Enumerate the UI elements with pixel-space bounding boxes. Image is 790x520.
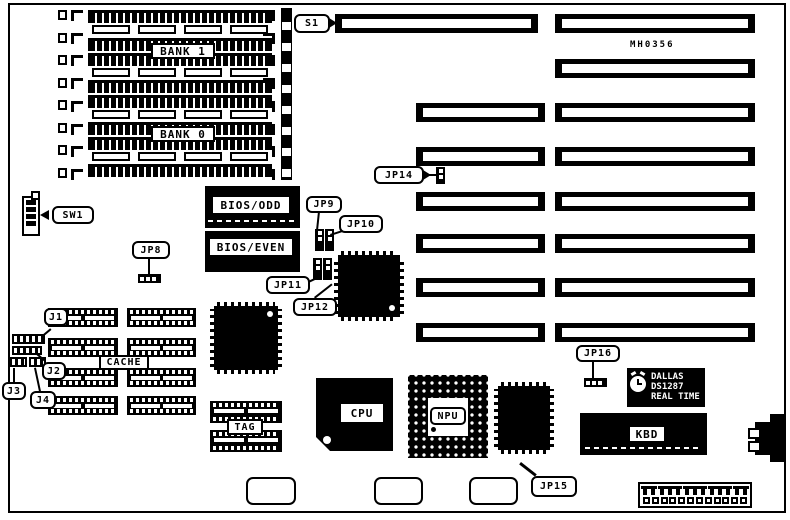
- expansion-slot: [555, 103, 755, 122]
- simm-socket: [184, 68, 222, 77]
- power-pin: [651, 488, 655, 495]
- pin: [439, 169, 443, 173]
- bios-even-label: BIOS/EVEN: [209, 238, 293, 256]
- power-socket: [722, 497, 729, 504]
- simm-socket: [184, 25, 222, 34]
- simm-latch-icon: [71, 78, 83, 89]
- teeth: [130, 340, 193, 344]
- din-pin: [748, 428, 761, 439]
- simm-module: [88, 10, 272, 23]
- window: [85, 346, 114, 350]
- pins: [217, 370, 275, 374]
- power-socket: [705, 497, 712, 504]
- power-pin: [701, 488, 705, 495]
- switch-segment: [26, 221, 36, 226]
- pin: [592, 381, 596, 385]
- power-pin: [676, 488, 680, 495]
- power-pin: [668, 488, 672, 495]
- npu-pin1-dot: [431, 427, 436, 432]
- cache-socket: [127, 368, 196, 387]
- jp8-callout: JP8: [132, 241, 170, 259]
- rtc-model: DS1287: [651, 382, 700, 392]
- rtc-brand: DALLAS: [651, 372, 700, 382]
- pins: [400, 258, 404, 314]
- pins: [501, 382, 547, 386]
- kbd-label: KBD: [629, 426, 665, 442]
- npu-label: NPU: [430, 407, 466, 425]
- teeth: [213, 403, 279, 407]
- switch-segment: [26, 214, 36, 219]
- simm-latch-icon: [71, 101, 83, 112]
- s1-callout: S1: [294, 14, 330, 33]
- din-pin: [748, 441, 761, 452]
- pin: [328, 237, 332, 241]
- rtc-tagline: REAL TIME: [651, 392, 700, 402]
- bank1-label: BANK 1: [151, 43, 215, 59]
- power-socket: [731, 497, 738, 504]
- power-socket: [669, 497, 676, 504]
- window: [131, 376, 160, 380]
- window: [163, 316, 192, 320]
- jp15-callout: JP15: [531, 476, 577, 497]
- power-pin: [660, 488, 664, 495]
- switch-segment: [26, 200, 36, 205]
- expansion-slot: [416, 103, 545, 122]
- jp8-jumper: [138, 274, 161, 283]
- simm-socket: [230, 68, 268, 77]
- pins: [217, 302, 275, 306]
- edge-square: [58, 145, 67, 155]
- rtc-chip: DALLAS DS1287 REAL TIME: [627, 368, 705, 407]
- expansion-slot: [555, 323, 755, 342]
- window: [163, 376, 192, 380]
- power-connector: [638, 482, 752, 508]
- window: [131, 316, 160, 320]
- edge-square: [58, 100, 67, 110]
- simm-socket: [138, 25, 176, 34]
- pin: [326, 260, 330, 264]
- simm-socket-row: [92, 25, 268, 34]
- simm-latch-icon: [71, 169, 83, 180]
- jp14-leader: [429, 174, 436, 176]
- power-socket: [678, 497, 685, 504]
- pin: [318, 237, 322, 241]
- pin1-dot: [267, 311, 273, 317]
- teeth: [130, 321, 193, 325]
- teeth: [130, 409, 193, 413]
- qfp-chip-controller: [214, 306, 278, 370]
- clock-bell-icon: [640, 371, 646, 376]
- simm-edge-squares-left: [58, 10, 67, 178]
- expansion-slot: [416, 278, 545, 297]
- expansion-slot: [555, 278, 755, 297]
- power-socket: [643, 497, 650, 504]
- window: [214, 409, 244, 413]
- power-pin-row: [643, 486, 747, 495]
- expansion-slot: [555, 59, 755, 78]
- expansion-slot: [555, 14, 755, 33]
- teeth: [51, 340, 115, 344]
- edge-square: [58, 123, 67, 133]
- pin: [598, 381, 602, 385]
- bios-odd-notch: [208, 220, 296, 222]
- sw1-callout: SW1: [52, 206, 94, 224]
- simm-latch-icon: [71, 33, 83, 44]
- edge-square: [58, 55, 67, 65]
- power-socket: [696, 497, 703, 504]
- pin: [318, 231, 322, 235]
- simm-socket: [138, 110, 176, 119]
- power-pin: [735, 488, 739, 495]
- simm-socket: [230, 152, 268, 161]
- power-pin: [743, 488, 747, 495]
- simm-socket: [92, 25, 130, 34]
- simm-socket: [184, 110, 222, 119]
- switch-segment: [26, 207, 36, 212]
- simm-socket: [230, 25, 268, 34]
- power-pin: [718, 488, 722, 495]
- pin1-dot: [389, 305, 395, 311]
- kbd-notch: [585, 447, 701, 449]
- power-pin: [726, 488, 730, 495]
- jp16-leader: [592, 361, 594, 379]
- jp16-callout: JP16: [576, 345, 620, 362]
- power-pin: [710, 488, 714, 495]
- power-pin: [685, 488, 689, 495]
- power-socket: [714, 497, 721, 504]
- power-pin: [643, 488, 647, 495]
- teeth: [130, 310, 193, 314]
- crystal-footprint: [374, 477, 423, 505]
- pin: [152, 277, 156, 281]
- j3-leader: [13, 368, 15, 383]
- qfp-chip-chipset: [338, 255, 400, 317]
- j4-callout: J4: [30, 391, 56, 409]
- power-socket: [687, 497, 694, 504]
- qfp-chip-io: [498, 386, 550, 450]
- simm-latch-icon: [71, 124, 83, 135]
- jp9-jumper: [315, 229, 324, 251]
- pins: [210, 309, 214, 367]
- j2-callout: J2: [42, 362, 66, 380]
- simm-socket: [138, 68, 176, 77]
- expansion-slot: [555, 234, 755, 253]
- window: [85, 316, 114, 320]
- pins: [550, 389, 554, 447]
- window: [214, 438, 244, 442]
- edge-square: [58, 10, 67, 20]
- jp12-jumper: [323, 258, 332, 280]
- teeth: [213, 446, 279, 450]
- edge-square: [58, 168, 67, 178]
- simm-socket-row: [92, 110, 268, 119]
- window: [163, 346, 192, 350]
- simm-module: [88, 164, 272, 177]
- simm-latch-icon: [71, 10, 83, 21]
- power-socket: [740, 497, 747, 504]
- jp8-leader: [148, 258, 150, 275]
- alarm-clock-icon: [630, 376, 646, 392]
- sw1-dip-switch: [22, 196, 40, 236]
- pin: [316, 260, 320, 264]
- expansion-slot: [416, 147, 545, 166]
- sw1-pointer-icon: [40, 210, 49, 220]
- power-socket-row: [643, 497, 747, 504]
- simm-socket-row: [92, 152, 268, 161]
- crystal-footprint: [469, 477, 518, 505]
- tag-label: TAG: [227, 419, 263, 435]
- j3-callout: J3: [2, 382, 26, 400]
- power-pin: [693, 488, 697, 495]
- simm-socket: [138, 152, 176, 161]
- pin1-dot: [323, 436, 331, 444]
- edge-square: [58, 33, 67, 43]
- j3-header: [10, 357, 27, 367]
- power-socket: [652, 497, 659, 504]
- jp11-callout: JP11: [266, 276, 310, 294]
- window: [163, 404, 192, 408]
- pins: [278, 309, 282, 367]
- pins: [341, 251, 397, 255]
- rtc-text: DALLAS DS1287 REAL TIME: [651, 372, 700, 402]
- cache-socket: [127, 308, 196, 327]
- motherboard-diagram: BANK 1 BANK 0 MH0356 S1 SW1 JP8 BIOS/ODD…: [0, 0, 790, 520]
- din-connector-bottom: [770, 455, 786, 462]
- simm-socket: [92, 68, 130, 77]
- teeth: [130, 398, 193, 402]
- expansion-slot: [416, 323, 545, 342]
- teeth: [51, 381, 115, 385]
- window: [131, 404, 160, 408]
- window: [85, 404, 114, 408]
- jp14-callout: JP14: [374, 166, 424, 184]
- window: [52, 404, 81, 408]
- teeth: [130, 381, 193, 385]
- pin: [586, 381, 590, 385]
- s1-pointer-icon: [329, 18, 337, 28]
- cache-label: CACHE: [99, 355, 149, 370]
- simm-socket: [92, 110, 130, 119]
- bios-odd-label: BIOS/ODD: [212, 196, 290, 214]
- jp14-jumper: [436, 167, 445, 184]
- part-number: MH0356: [630, 40, 675, 50]
- simm-socket-row: [92, 68, 268, 77]
- teeth: [51, 398, 115, 402]
- simm-latch-icon: [71, 55, 83, 66]
- j1-callout: J1: [44, 308, 68, 326]
- jp12-callout: JP12: [293, 298, 337, 316]
- pins: [341, 317, 397, 321]
- crystal-footprint: [246, 477, 296, 505]
- simm-socket: [92, 152, 130, 161]
- pins: [494, 389, 498, 447]
- window: [131, 346, 160, 350]
- expansion-slot: [555, 192, 755, 211]
- pin: [326, 266, 330, 270]
- simm-module: [88, 80, 272, 93]
- window: [248, 438, 278, 442]
- pin: [316, 266, 320, 270]
- simm-latches-left: [71, 10, 84, 180]
- jp16-jumper: [584, 378, 607, 387]
- bank0-label: BANK 0: [151, 126, 215, 142]
- pin: [140, 277, 144, 281]
- pin: [146, 277, 150, 281]
- simm-socket: [184, 152, 222, 161]
- window: [85, 376, 114, 380]
- jp10-callout: JP10: [339, 215, 383, 233]
- power-socket: [661, 497, 668, 504]
- simm-socket: [230, 110, 268, 119]
- window: [52, 346, 81, 350]
- teeth: [130, 370, 193, 374]
- simm-edge-strip-right: [281, 8, 292, 180]
- cpu-label: CPU: [341, 404, 383, 422]
- teeth: [51, 409, 115, 413]
- pin: [439, 175, 443, 179]
- simm-module: [88, 95, 272, 108]
- cache-socket: [127, 396, 196, 415]
- cache-socket: [48, 396, 118, 415]
- jp9-callout: JP9: [306, 196, 342, 213]
- din-connector-top: [770, 414, 786, 422]
- window: [248, 409, 278, 413]
- expansion-slot: [416, 234, 545, 253]
- simm-latch-icon: [71, 146, 83, 157]
- expansion-slot: [416, 192, 545, 211]
- edge-square: [58, 78, 67, 88]
- s1-expansion-slot: [335, 14, 538, 33]
- switch-notch: [31, 191, 40, 200]
- expansion-slot: [555, 147, 755, 166]
- pins: [501, 450, 547, 454]
